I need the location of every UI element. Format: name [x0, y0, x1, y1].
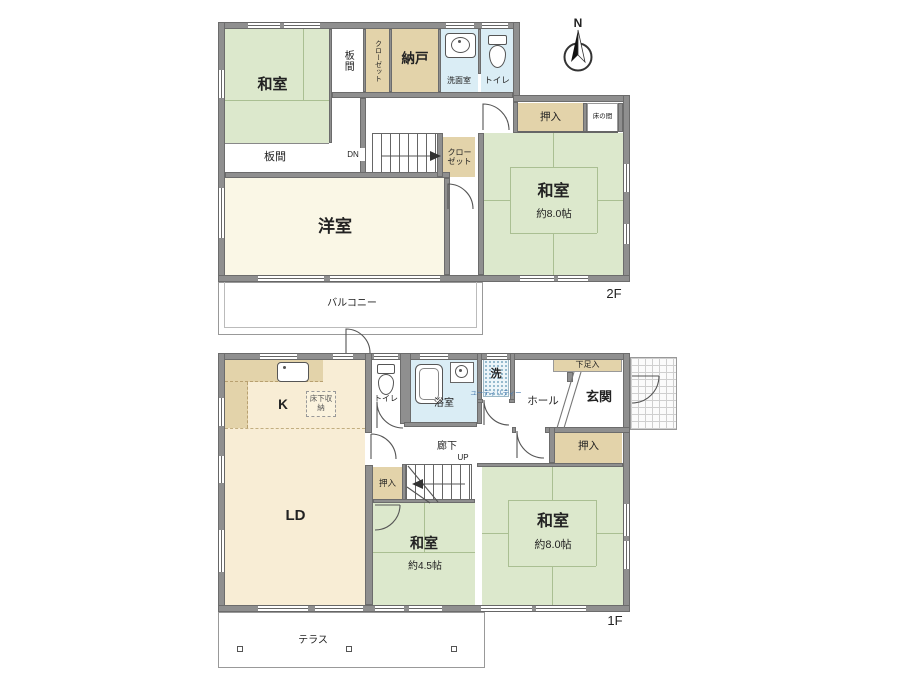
- 1f-laundry-label: 洗: [482, 366, 510, 382]
- 1f-ld-label: LD: [268, 505, 323, 527]
- 2f-toilet-label: トイレ: [479, 74, 515, 87]
- compass-north-label: N: [569, 17, 587, 31]
- 1f-oshiire-stair-label: 押入: [373, 477, 402, 491]
- 1f-entrance-porch: [630, 357, 677, 430]
- 2f-floor-label: 2F: [598, 286, 630, 302]
- 1f-washitsu-center-label: 和室: [395, 533, 453, 553]
- 1f-toilet-label: トイレ: [370, 392, 402, 405]
- floor-plan-canvas: 和室 板間 板間 クローゼット 納戸 洗面室 トイレ 押入 床の間 和室 約8.…: [0, 0, 920, 690]
- 1f-floor-label: 1F: [600, 613, 630, 629]
- 2f-balcony-label: バルコニー: [308, 296, 396, 312]
- 1f-washitsu-center-size: 約4.5帖: [388, 560, 462, 574]
- 1f-laundry-sub-label: ユーティリティー: [474, 389, 518, 398]
- 2f-toilet-tank-icon: [488, 35, 507, 45]
- 1f-kitchen-faucet-icon: [283, 366, 286, 369]
- 2f-oshiire-label: 押入: [518, 108, 583, 126]
- 1f-kld-divider: [225, 428, 365, 429]
- 1f-kitchen-label: K: [267, 395, 299, 415]
- 2f-sink-dot-icon: [458, 40, 461, 43]
- 1f-shoe-cabinet-label: 下足入: [553, 358, 622, 371]
- 2f-nando-label: 納戸: [392, 48, 438, 70]
- 2f-stairs: [372, 133, 441, 177]
- 1f-terrace-label: テラス: [284, 634, 342, 648]
- 2f-washitsu-nw-label: 和室: [240, 74, 305, 96]
- 1f-yukashita-label: 床下収納: [308, 393, 334, 415]
- terrace-post: [451, 646, 457, 652]
- 2f-itama-vertical-label: 板間: [332, 38, 363, 84]
- 1f-oshiire-east-label: 押入: [555, 437, 622, 455]
- 1f-kitchen-counter-left: [225, 382, 248, 428]
- 1f-bath-sink-dot-icon: [459, 369, 462, 372]
- 1f-bathtub-inner-icon: [419, 368, 439, 400]
- 2f-washitsu-east-size: 約8.0帖: [514, 207, 594, 222]
- 1f-genkan-label: 玄関: [576, 389, 622, 405]
- compass-icon: [565, 44, 592, 71]
- 1f-stairs-up-label: UP: [451, 452, 475, 463]
- 1f-hall-label: ホール: [518, 394, 568, 408]
- 1f-terrace: [218, 612, 485, 668]
- 1f-bath-label: 浴室: [418, 397, 470, 411]
- 2f-itama-horizontal-label: 板間: [222, 149, 328, 165]
- terrace-post: [237, 646, 243, 652]
- 1f-kitchen-sink-icon: [277, 362, 309, 382]
- 2f-stairs-dn-label: DN: [341, 148, 365, 161]
- 2f-closet-north-label: クローゼット: [366, 31, 389, 91]
- 1f-stairs: [406, 464, 472, 503]
- 2f-yoshitsu-label: 洋室: [300, 215, 370, 239]
- 1f-washitsu-east-label: 和室: [521, 511, 585, 533]
- 1f-toilet-tank-icon: [377, 364, 395, 374]
- 2f-tokonoma-label: 床の間: [587, 111, 618, 123]
- 1f-washitsu-east-size: 約8.0帖: [514, 538, 592, 553]
- terrace-post: [346, 646, 352, 652]
- 2f-senmenshitsu-label: 洗面室: [437, 74, 481, 87]
- 2f-washitsu-east-label: 和室: [520, 181, 587, 203]
- 2f-closet-mid-label: クローゼット: [445, 140, 474, 174]
